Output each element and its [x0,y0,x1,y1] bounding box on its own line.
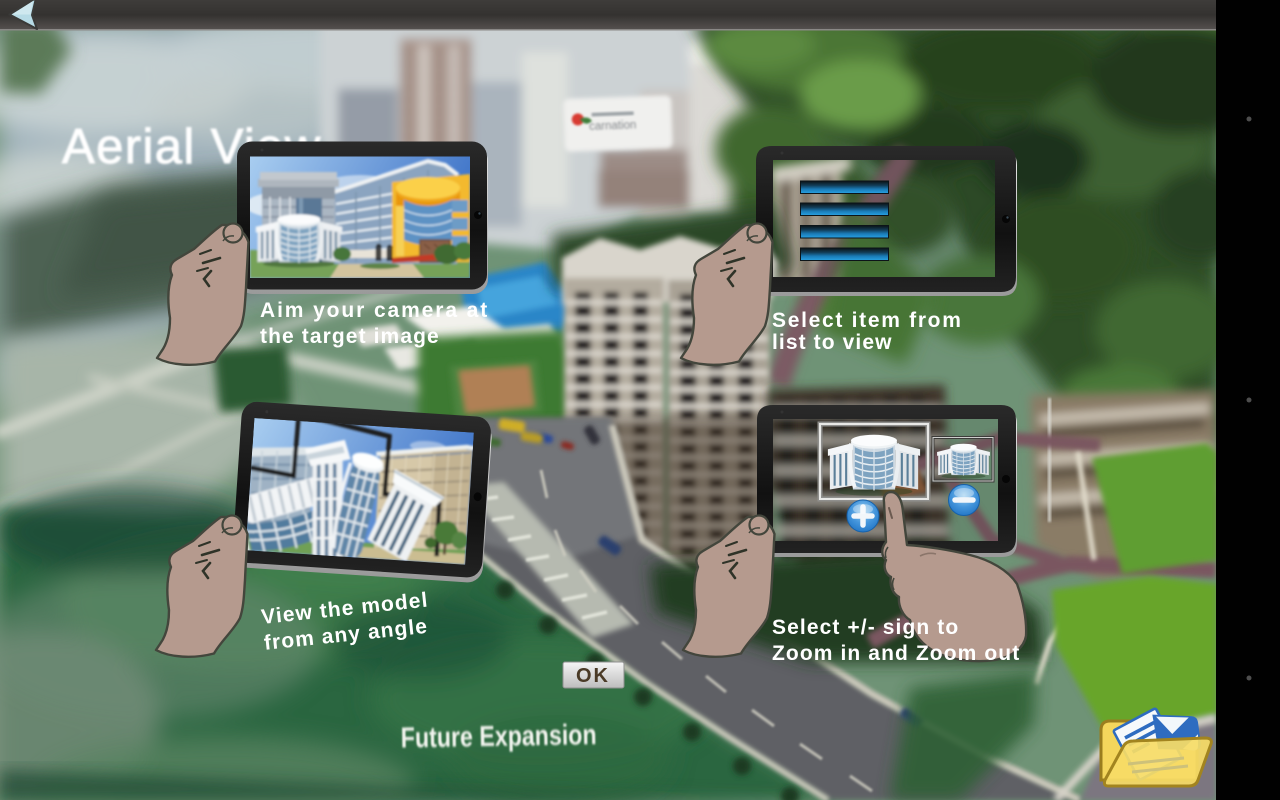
svg-text:Select +/- sign to: Select +/- sign to [772,616,959,639]
svg-text:Future Expansion: Future Expansion [400,718,596,755]
svg-text:the target image: the target image [260,325,440,348]
svg-text:Select item from: Select item from [772,309,963,332]
svg-text:OK: OK [576,665,610,687]
svg-text:Aim your camera at: Aim your camera at [260,299,489,322]
svg-text:carnation: carnation [589,119,637,133]
svg-text:Zoom in and Zoom out: Zoom in and Zoom out [772,642,1020,665]
svg-text:list to view: list to view [772,331,893,354]
